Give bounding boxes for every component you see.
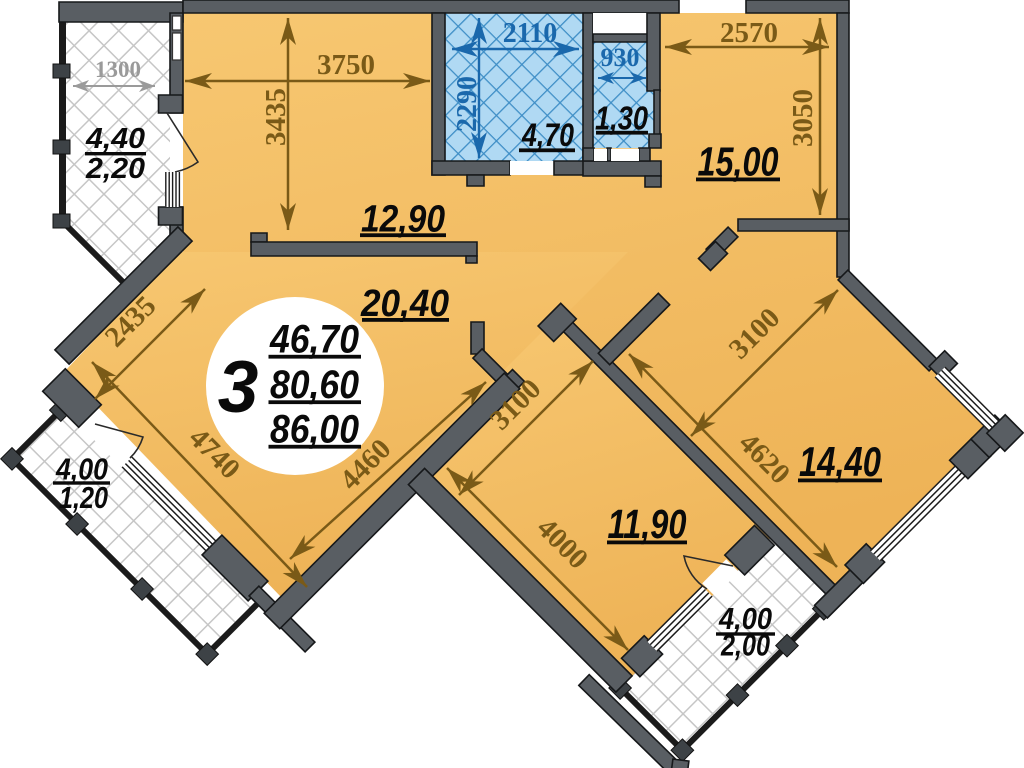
svg-text:2110: 2110 [503, 18, 557, 49]
svg-text:3: 3 [218, 347, 259, 428]
svg-text:4,40: 4,40 [85, 123, 145, 155]
svg-text:14,40: 14,40 [799, 438, 881, 485]
svg-text:930: 930 [601, 43, 640, 72]
svg-text:3050: 3050 [787, 89, 819, 147]
svg-text:2,00: 2,00 [720, 628, 770, 663]
svg-text:2290: 2290 [452, 76, 483, 132]
svg-text:3435: 3435 [260, 88, 292, 146]
svg-text:2570: 2570 [720, 17, 778, 49]
svg-text:1,20: 1,20 [59, 480, 108, 515]
svg-text:2,20: 2,20 [85, 153, 145, 185]
svg-text:3750: 3750 [317, 49, 375, 81]
svg-text:11,90: 11,90 [608, 501, 687, 547]
svg-text:4,70: 4,70 [521, 117, 574, 153]
svg-text:1300: 1300 [95, 57, 141, 82]
